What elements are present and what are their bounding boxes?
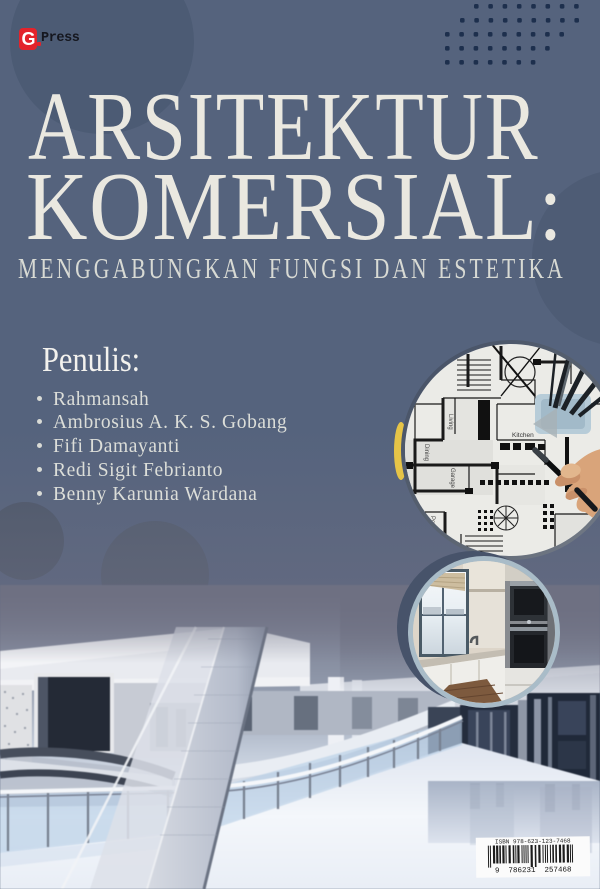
- svg-text:Kitchen: Kitchen: [512, 432, 534, 439]
- svg-text:Dining: Dining: [423, 444, 429, 461]
- svg-text:Garage: Garage: [449, 468, 455, 489]
- svg-text:Living: Living: [447, 414, 453, 430]
